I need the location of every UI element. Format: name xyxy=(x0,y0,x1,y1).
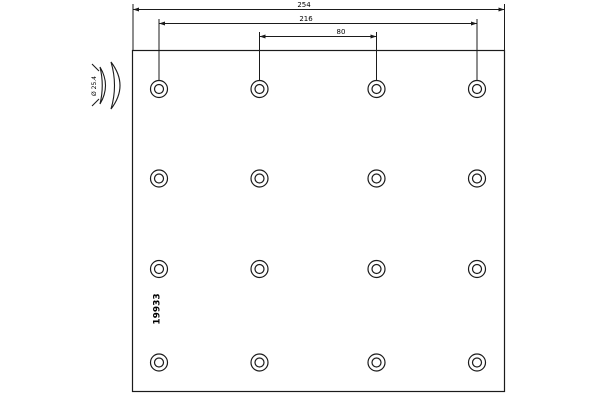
rivet-hole-inner xyxy=(372,265,381,274)
rivet-hole-inner xyxy=(473,358,482,367)
dimension-label: 80 xyxy=(337,28,346,36)
rivet-hole-inner xyxy=(255,265,264,274)
profile-band-outer-icon xyxy=(111,62,120,109)
dimension-annotations: 25421680 xyxy=(133,1,505,81)
profile-dimension-label: Ø 25.4 xyxy=(91,76,98,96)
rivet-hole-inner xyxy=(372,358,381,367)
brake-lining-profile-icon: Ø 25.4 xyxy=(91,62,120,109)
rivet-hole-inner xyxy=(473,174,482,183)
brake-lining-plate xyxy=(133,51,505,392)
rivet-hole-inner xyxy=(473,85,482,94)
dimension-label: 254 xyxy=(297,1,311,9)
rivet-hole-inner xyxy=(255,85,264,94)
rivet-hole-inner xyxy=(372,174,381,183)
brake-lining-drawing: 25421680 19933 Ø 25.4 xyxy=(0,0,600,400)
profile-band-inner-icon xyxy=(100,67,106,104)
rivet-hole-inner xyxy=(473,265,482,274)
rivet-hole-inner xyxy=(155,265,164,274)
rivet-hole-inner xyxy=(155,358,164,367)
rivet-hole-inner xyxy=(372,85,381,94)
part-number-label: 19933 xyxy=(153,293,163,324)
rivet-hole-inner xyxy=(155,174,164,183)
rivet-hole-inner xyxy=(255,174,264,183)
rivet-holes xyxy=(151,81,486,372)
technical-drawing-page: 25421680 19933 Ø 25.4 xyxy=(0,0,600,400)
rivet-hole-inner xyxy=(255,358,264,367)
rivet-hole-inner xyxy=(155,85,164,94)
dimension-label: 216 xyxy=(299,15,313,23)
profile-leader-bottom-icon xyxy=(92,99,99,106)
profile-leader-top-icon xyxy=(92,64,99,71)
